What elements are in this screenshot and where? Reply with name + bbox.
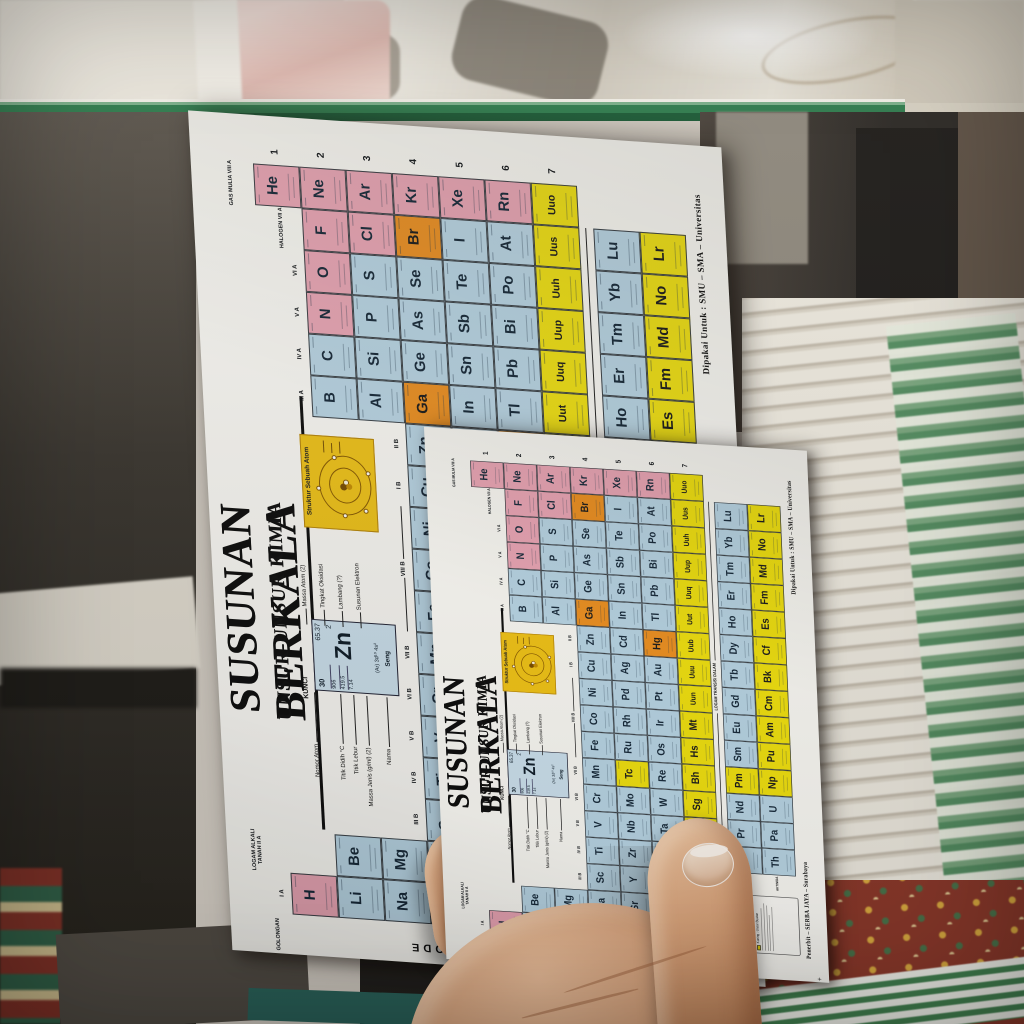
element-cell-Cl: Cl (348, 212, 396, 257)
element-symbol: Mg (391, 839, 410, 880)
micro-number (454, 416, 456, 424)
micro-mass (524, 888, 525, 895)
element-symbol: Fm (758, 585, 771, 611)
micro-number (645, 623, 646, 628)
micro-config (521, 231, 524, 258)
micro-mass (415, 552, 417, 563)
element-cell-Sg: Sg (683, 790, 717, 819)
group-label-b: I B (395, 464, 404, 506)
micro-name (782, 672, 783, 685)
element-symbol: Yb (606, 272, 625, 313)
element-symbol: Cf (760, 637, 773, 663)
micro-config (640, 766, 642, 783)
micro-config (561, 471, 563, 488)
micro-number (494, 294, 496, 302)
micro-number (443, 207, 445, 215)
key-arrow-line (360, 612, 362, 628)
group-label-b: VI B (406, 673, 415, 715)
micro-config (437, 392, 440, 419)
element-symbol: Uuo (545, 185, 559, 226)
micro-number (647, 676, 648, 681)
micro-config (603, 685, 605, 702)
element-cell-Uuq: Uuq (539, 350, 587, 395)
micro-mass (618, 762, 619, 769)
micro-config (673, 768, 675, 785)
element-symbol: S (546, 519, 559, 545)
element-cell-C: C (508, 568, 542, 597)
atom-nucleus (346, 484, 352, 490)
micro-config (700, 612, 702, 629)
micro-name (788, 804, 789, 817)
micro-name (631, 478, 632, 491)
micro-mass (729, 795, 730, 802)
micro-mass (585, 760, 586, 767)
micro-number (588, 830, 589, 835)
micro-config (484, 395, 487, 422)
micro-config (740, 535, 742, 552)
micro-number (580, 645, 581, 650)
element-cell-Uus: Uus (671, 499, 705, 528)
element-cell-Tl: Tl (642, 603, 676, 632)
micro-config (638, 713, 640, 730)
element-cell-S: S (539, 518, 573, 547)
micro-config (426, 183, 429, 210)
element-symbol: Sb (455, 303, 474, 344)
element-symbol: C (318, 335, 337, 376)
element-cell-Ne: Ne (299, 167, 347, 212)
micro-config (632, 322, 635, 349)
micro-config (599, 579, 601, 596)
micro-number (678, 625, 679, 630)
micro-mass (310, 295, 312, 306)
micro-mass (721, 610, 722, 617)
period-number: 1 (482, 447, 490, 460)
element-symbol: Te (612, 523, 625, 549)
element-symbol: Co (587, 706, 600, 732)
element-symbol: Kr (402, 175, 421, 216)
micro-number (542, 339, 544, 347)
micro-name (709, 746, 710, 759)
micro-number (585, 777, 586, 782)
element-cell-No: No (748, 531, 782, 560)
period-number: 4 (408, 151, 420, 172)
micro-name (640, 368, 642, 389)
element-symbol: B (320, 377, 339, 418)
micro-number (675, 546, 676, 551)
micro-config (780, 696, 782, 713)
micro-mass (385, 841, 387, 852)
micro-config (567, 603, 569, 620)
micro-config (530, 398, 533, 425)
element-symbol: Ge (581, 574, 594, 600)
micro-mass (398, 218, 400, 229)
micro-name (524, 193, 526, 214)
element-cell-Ga: Ga (575, 599, 609, 628)
micro-number (258, 194, 260, 202)
element-cell-P: P (352, 295, 400, 340)
micro-config (288, 174, 291, 201)
micro-config (533, 575, 535, 592)
micro-mass (537, 228, 539, 239)
element-cell-Eu: Eu (723, 714, 757, 743)
element-cell-S: S (350, 253, 398, 298)
micro-number (584, 751, 585, 756)
micro-number (761, 762, 762, 767)
micro-mass (446, 263, 448, 274)
micro-number (650, 729, 651, 734)
micro-mass (615, 682, 616, 689)
micro-config (744, 641, 746, 658)
group-label-b: II B (568, 625, 574, 652)
micro-config (477, 270, 480, 297)
micro-mass (507, 491, 508, 498)
micro-config (702, 665, 704, 682)
element-symbol: Sn (457, 345, 476, 386)
micro-number (753, 577, 754, 582)
micro-mass (640, 499, 641, 506)
element-symbol: C (515, 569, 528, 595)
group-header-alkali-tanah: LOGAM ALKALI TANAH II A (250, 824, 265, 875)
micro-config (534, 601, 536, 618)
element-symbol: Pm (732, 768, 745, 794)
micro-config (705, 744, 707, 761)
element-symbol: Md (757, 558, 770, 584)
group-label-b: VI B (574, 784, 580, 811)
micro-mass (490, 224, 492, 235)
micro-name (436, 271, 438, 292)
element-cell-At: At (487, 221, 535, 266)
micro-mass (573, 495, 574, 502)
element-symbol: S (360, 255, 379, 296)
micro-number (508, 509, 509, 514)
micro-name (638, 636, 639, 649)
element-symbol: Cu (585, 653, 598, 679)
element-cell-B: B (509, 595, 543, 624)
micro-name (532, 471, 533, 484)
micro-config (664, 557, 666, 574)
element-cell-Yb: Yb (595, 270, 643, 315)
micro-name (348, 348, 350, 369)
micro-name (639, 663, 640, 676)
micro-number (342, 907, 344, 915)
element-cell-Uup: Uup (537, 308, 585, 353)
micro-mass (682, 713, 683, 720)
key-arrow-line (542, 745, 543, 755)
micro-config (706, 770, 708, 787)
micro-name (569, 579, 570, 592)
micro-number (641, 517, 642, 522)
element-symbol: Ni (586, 679, 599, 705)
micro-mass (411, 468, 413, 479)
micro-config (343, 344, 346, 371)
micro-name (711, 799, 712, 812)
element-symbol: Es (759, 611, 772, 637)
micro-config (628, 239, 631, 266)
element-symbol: Si (364, 338, 383, 379)
key-arrow-line (546, 798, 548, 830)
group-label-text: VIII B (400, 561, 408, 576)
micro-name (786, 751, 787, 764)
element-cell-Br: Br (394, 215, 442, 260)
micro-number (448, 291, 450, 299)
element-symbol: Xe (610, 470, 623, 496)
key-left-label: Massa Jenis (g/ml) (2) (366, 747, 375, 811)
element-symbol: Pa (768, 823, 781, 849)
micro-number (640, 491, 641, 496)
element-cell-Te: Te (443, 260, 491, 305)
micro-mass (672, 475, 673, 482)
element-symbol: Rn (643, 472, 656, 498)
micro-number (758, 709, 759, 714)
micro-mass (509, 544, 510, 551)
element-cell-Np: Np (758, 769, 792, 798)
element-cell-Uut: Uut (542, 391, 590, 436)
element-symbol: Nb (625, 814, 638, 840)
micro-number (388, 910, 390, 918)
element-cell-Be: Be (335, 834, 383, 879)
element-symbol: Lr (754, 505, 767, 531)
atom-box-caption: Struktur Sebuah Atom (503, 633, 511, 691)
element-symbol: Rh (620, 708, 633, 734)
micro-mass (572, 469, 573, 476)
micro-number (654, 834, 655, 839)
micro-config (695, 506, 697, 523)
micro-name (485, 315, 487, 336)
micro-config (565, 550, 567, 567)
micro-mass (448, 305, 450, 316)
element-symbol: Br (578, 494, 591, 520)
kunci-zn-box: 3065.372906419.57.14Zn(Ar) 3d¹⁰ 4s²Seng (311, 619, 399, 696)
micro-name (742, 511, 743, 524)
element-cell-Er: Er (717, 581, 751, 610)
micro-mass (730, 822, 731, 829)
element-cell-Ge: Ge (401, 340, 449, 385)
micro-config (380, 180, 383, 207)
micro-name (642, 716, 643, 729)
micro-mass (579, 627, 580, 634)
micro-config (562, 498, 564, 515)
micro-config (631, 555, 633, 572)
micro-mass (506, 465, 507, 472)
micro-config (325, 883, 328, 910)
micro-config (608, 791, 610, 808)
key-arrow-line (527, 797, 529, 829)
element-cell-Er: Er (600, 354, 648, 399)
micro-number (756, 656, 757, 661)
micro-mass (619, 788, 620, 795)
element-cell-Md: Md (749, 557, 783, 586)
micro-config (473, 186, 476, 213)
micro-number (724, 680, 725, 685)
label-line (404, 578, 408, 631)
element-cell-O: O (506, 515, 540, 544)
micro-config (431, 267, 434, 294)
micro-number (718, 548, 719, 553)
micro-number (428, 788, 430, 796)
micro-number (430, 830, 432, 838)
micro-mass (404, 343, 406, 354)
element-symbol: Uuh (549, 268, 563, 309)
element-symbol: Lr (650, 233, 669, 274)
group-label-a: V A (294, 291, 303, 333)
period-number: 7 (547, 161, 559, 182)
element-cell-Uuo: Uuo (531, 183, 579, 228)
micro-config (606, 738, 608, 755)
micro-mass (718, 531, 719, 538)
micro-mass (601, 315, 603, 326)
element-symbol: Ga (413, 383, 432, 424)
element-cell-I: I (440, 218, 488, 263)
micro-config (632, 581, 634, 598)
micro-mass (294, 876, 296, 887)
micro-name (423, 893, 425, 914)
micro-config (482, 353, 485, 380)
micro-mass (588, 839, 589, 846)
micro-config (369, 844, 372, 871)
element-symbol: Tl (506, 390, 525, 431)
element-cell-F: F (504, 489, 538, 518)
element-cell-Ru: Ru (614, 733, 648, 762)
micro-mass (674, 528, 675, 535)
micro-config (669, 662, 671, 679)
element-cell-At: At (637, 497, 671, 526)
micro-mass (678, 607, 679, 614)
micro-number (510, 562, 511, 567)
period-number: 6 (648, 457, 656, 470)
micro-number (611, 594, 612, 599)
micro-number (498, 377, 500, 385)
group-label-b: V B (408, 715, 417, 757)
label-line (574, 724, 576, 758)
element-symbol: Kr (577, 468, 590, 494)
grey-item (716, 112, 808, 264)
micro-mass (644, 605, 645, 612)
micro-mass (720, 583, 721, 590)
micro-config (708, 797, 710, 814)
micro-mass (587, 813, 588, 820)
micro-number (501, 419, 503, 427)
micro-number (620, 806, 621, 811)
micro-config (576, 401, 579, 428)
micro-mass (724, 689, 725, 696)
micro-config (565, 193, 568, 220)
micro-number (408, 413, 410, 421)
element-cell-Pt: Pt (645, 682, 679, 711)
micro-number (605, 385, 607, 393)
registration-mark: + (816, 977, 824, 981)
micro-config (679, 325, 682, 352)
element-symbol: W (657, 789, 670, 815)
micro-name (754, 776, 755, 789)
micro-number (307, 239, 309, 247)
micro-number (601, 301, 603, 309)
element-symbol: Ir (654, 710, 667, 736)
micro-name (478, 190, 480, 211)
micro-number (653, 430, 655, 438)
key-left-label: Titik Didih °C (526, 830, 532, 871)
element-cell-Si: Si (354, 337, 402, 382)
usage-note: Dipakai Untuk : SMU – SMA – Universitas (785, 480, 801, 686)
element-symbol: At (497, 223, 516, 264)
element-cell-Br: Br (571, 493, 605, 522)
micro-config (777, 643, 779, 660)
micro-name (705, 641, 706, 654)
element-cell-Uuh: Uuh (535, 266, 583, 311)
micro-name (787, 778, 788, 791)
element-symbol: Se (406, 258, 425, 299)
micro-name (535, 551, 536, 564)
micro-mass (719, 557, 720, 564)
micro-mass (750, 506, 751, 513)
element-cell-B: B (310, 375, 358, 420)
micro-config (743, 614, 745, 631)
micro-mass (351, 215, 353, 226)
micro-number (419, 621, 421, 629)
element-cell-Tc: Tc (615, 760, 649, 789)
element-cell-Fm: Fm (750, 584, 784, 613)
micro-name (374, 848, 376, 869)
micro-mass (575, 522, 576, 529)
micro-config (665, 583, 667, 600)
micro-config (564, 524, 566, 541)
micro-mass (540, 493, 541, 500)
micro-number (725, 707, 726, 712)
micro-config (786, 854, 788, 871)
element-cell-He: He (253, 163, 301, 208)
micro-number (511, 588, 512, 593)
period-number: 3 (361, 148, 373, 169)
micro-config (433, 308, 436, 335)
micro-number (540, 484, 541, 489)
element-symbol: Np (766, 770, 779, 796)
micro-number (752, 550, 753, 555)
micro-config (567, 235, 570, 262)
micro-number (404, 329, 406, 337)
element-cell-Uup: Uup (673, 552, 707, 581)
micro-number (575, 539, 576, 544)
micro-mass (725, 716, 726, 723)
micro-number (676, 572, 677, 577)
key-config: (Ar) 3d¹⁰ 4s² (551, 753, 557, 796)
micro-config (636, 660, 638, 677)
element-symbol: Au (651, 657, 664, 683)
micro-name (777, 540, 778, 553)
micro-number (726, 733, 727, 738)
micro-number (547, 422, 549, 430)
micro-number (677, 598, 678, 603)
micro-name (489, 399, 491, 420)
micro-config (382, 222, 385, 249)
micro-number (357, 326, 359, 334)
micro-number (616, 726, 617, 731)
atom-structure-box: Struktur Sebuah Atom (500, 632, 556, 695)
element-symbol: H (301, 874, 320, 915)
micro-config (704, 717, 706, 734)
element-cell-Ho: Ho (718, 608, 752, 637)
element-cell-Bi: Bi (491, 305, 539, 350)
micro-name (686, 371, 688, 392)
micro-mass (649, 711, 650, 718)
micro-number (610, 568, 611, 573)
micro-name (790, 857, 791, 870)
atom-electron (523, 645, 527, 648)
micro-mass (453, 388, 455, 399)
micro-config (391, 389, 394, 416)
element-cell-N: N (507, 542, 541, 571)
element-cell-Pu: Pu (757, 742, 791, 771)
element-symbol: Mo (624, 787, 637, 813)
micro-config (696, 532, 698, 549)
